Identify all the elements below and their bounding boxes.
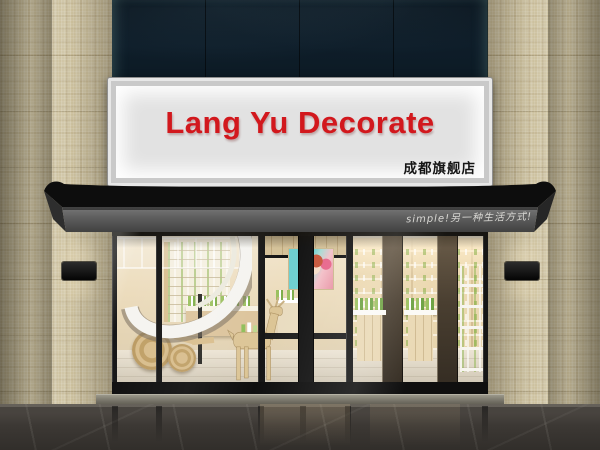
table-products: [406, 298, 435, 310]
window-frame: [112, 232, 117, 394]
door-frame-right: [346, 232, 353, 394]
store-name-text: Lang Yu Decorate: [111, 105, 489, 141]
pavement-floor: [0, 404, 600, 450]
storefront-glazing: [112, 232, 488, 394]
bronze-mirror-strip: [437, 236, 458, 384]
wall-lamp-right: [505, 262, 539, 280]
table-base: [408, 315, 433, 361]
white-display-table: [406, 304, 435, 364]
white-etagere-shelf: [460, 266, 485, 372]
door-rail: [314, 333, 346, 339]
window-frame: [483, 232, 488, 394]
door-frame-left: [258, 232, 265, 394]
wall-lamp-left: [62, 262, 96, 280]
upper-floor-glass: [112, 0, 488, 84]
door-rail: [265, 333, 298, 339]
floor-reflection: [112, 406, 118, 442]
awning-shadow: [112, 232, 488, 248]
white-display-table: [355, 304, 384, 364]
floor-reflection: [482, 406, 488, 442]
storefront-photo: Lang Yu Decorate 成都旗舰店: [0, 0, 600, 450]
storefront-sill: [112, 382, 488, 394]
store-sign: Lang Yu Decorate 成都旗舰店: [108, 78, 492, 186]
floor-warm-reflection: [370, 404, 460, 446]
door-center-stiles: [298, 232, 314, 394]
awning-canopy: [40, 174, 560, 236]
table-products: [355, 298, 384, 310]
wooden-deer-sculpture: [218, 290, 296, 390]
floor-reflection: [156, 406, 162, 442]
floor-warm-reflection: [260, 404, 350, 446]
table-base: [357, 315, 382, 361]
awning-slogan-text: simple!另一种生活方式!: [406, 208, 532, 226]
window-mullion: [156, 232, 162, 394]
